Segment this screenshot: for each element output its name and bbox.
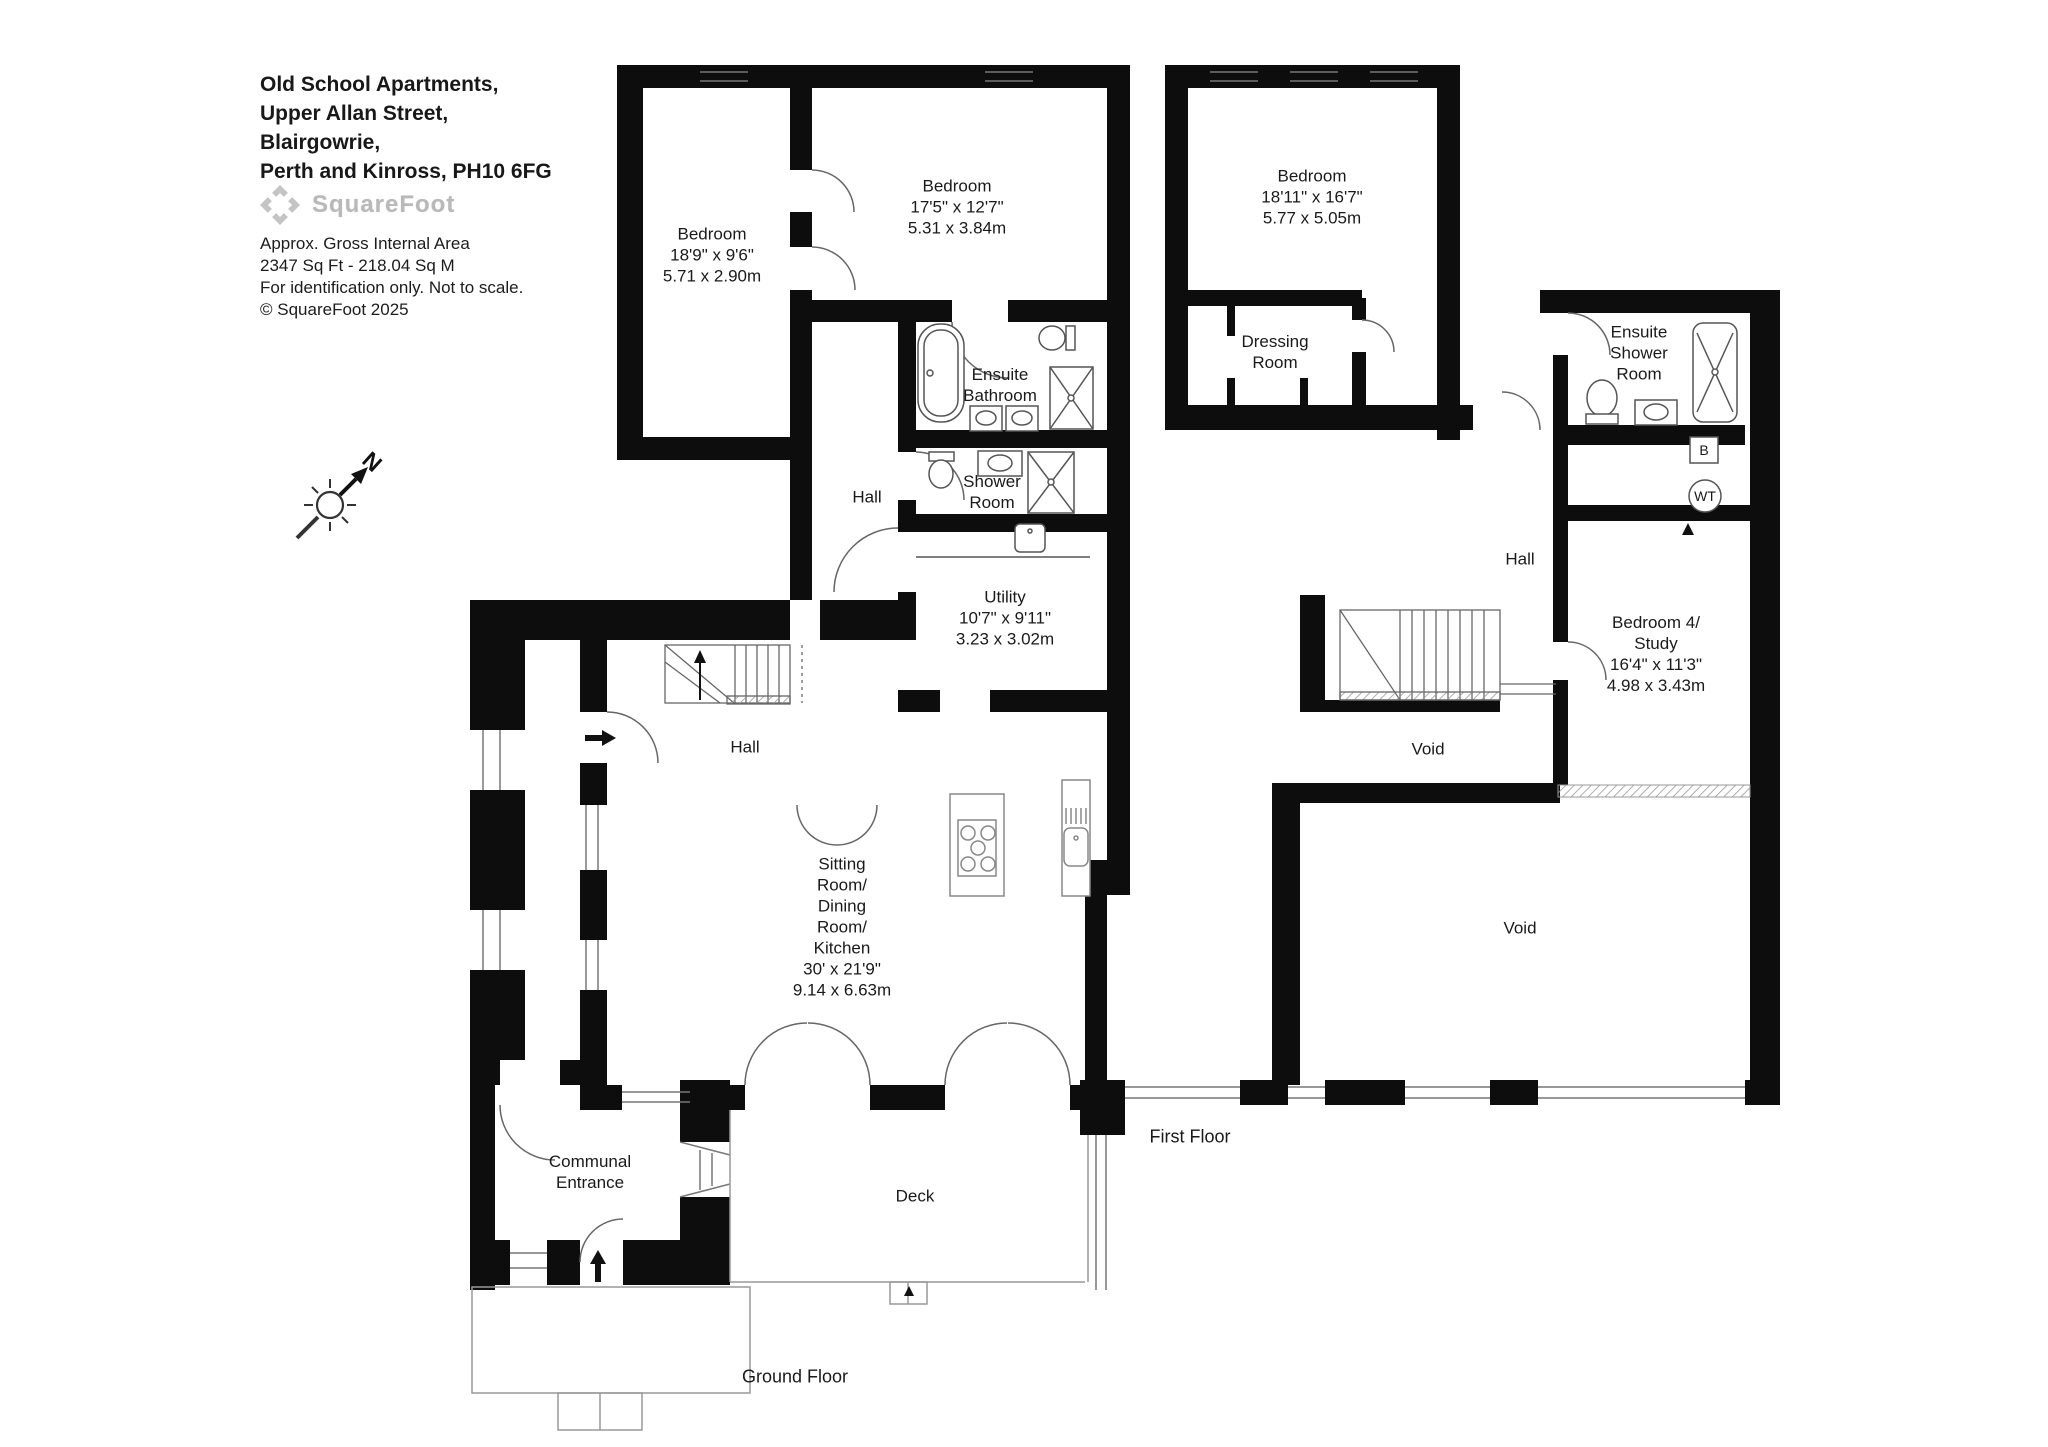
showerroom-toilet-fixture (929, 452, 954, 488)
room-label-ground-hall-upper: Hall (852, 487, 881, 508)
boiler-label: B (1699, 442, 1708, 458)
room-label-ensuite-bathroom: Ensuite Bathroom (963, 364, 1037, 406)
room-label-ground-bedroom-1: Bedroom 18'9" x 9'6" 5.71 x 2.90m (663, 224, 761, 287)
showerroom-shower-fixture (1028, 452, 1074, 513)
ensuite-sinks-fixture (970, 406, 1038, 431)
compass (297, 467, 368, 538)
room-label-void-2: Void (1503, 918, 1536, 939)
room-label-deck: Deck (896, 1186, 935, 1207)
kitchen-counter-sink-fixture (1062, 780, 1090, 896)
room-label-void-1: Void (1411, 739, 1444, 760)
deck-outline (730, 1110, 1088, 1304)
room-label-ground-hall-lower: Hall (730, 737, 759, 758)
ground-floor-walls (470, 65, 1130, 1290)
room-label-dressing-room: Dressing Room (1241, 331, 1308, 373)
ground-staircase (665, 645, 802, 704)
ensuite-toilet-fixture (1039, 326, 1075, 350)
room-label-shower-room: Shower Room (963, 471, 1021, 513)
void-open-edge (1558, 785, 1750, 797)
first-floor-door-swings (1362, 313, 1610, 680)
first-floor-caption: First Floor (1150, 1127, 1231, 1148)
communal-entrance-arrow-icon (590, 1250, 606, 1282)
first-ensuite-shower-fixture (1693, 323, 1737, 422)
room-label-communal-entrance: Communal Entrance (549, 1151, 631, 1193)
ground-floor-plan (470, 65, 1130, 1430)
first-staircase (1340, 610, 1556, 700)
ground-floor-caption: Ground Floor (742, 1367, 848, 1388)
room-label-sitting-dining-kitchen: Sitting Room/ Dining Room/ Kitchen 30' x… (793, 854, 891, 1001)
room-label-ensuite-shower-room: Ensuite Shower Room (1610, 322, 1668, 385)
entrance-arrow-icon (585, 730, 616, 746)
porch-outline (472, 1287, 750, 1430)
first-floor-walls (1080, 65, 1780, 1135)
room-label-bedroom4-study: Bedroom 4/ Study 16'4" x 11'3" 4.98 x 3.… (1607, 612, 1705, 696)
first-ensuite-toilet-fixture (1586, 380, 1618, 424)
room-label-utility: Utility 10'7" x 9'11" 3.23 x 3.02m (956, 587, 1054, 650)
ensuite-shower-fixture (1050, 367, 1093, 429)
floor-plan-canvas (0, 0, 2048, 1447)
room-label-first-bedroom: Bedroom 18'11" x 16'7" 5.77 x 5.05m (1261, 166, 1362, 229)
room-label-ground-bedroom-2: Bedroom 17'5" x 12'7" 5.31 x 3.84m (908, 176, 1006, 239)
water-tank-label: WT (1694, 488, 1716, 504)
bathtub-fixture (918, 324, 964, 422)
floorplan-page: Old School Apartments, Upper Allan Stree… (0, 0, 2048, 1447)
kitchen-island-hob-fixture (950, 794, 1004, 896)
first-ensuite-sink-fixture (1635, 400, 1677, 425)
room-label-first-hall: Hall (1505, 549, 1534, 570)
bed4-window-arrow-icon (1682, 523, 1694, 535)
